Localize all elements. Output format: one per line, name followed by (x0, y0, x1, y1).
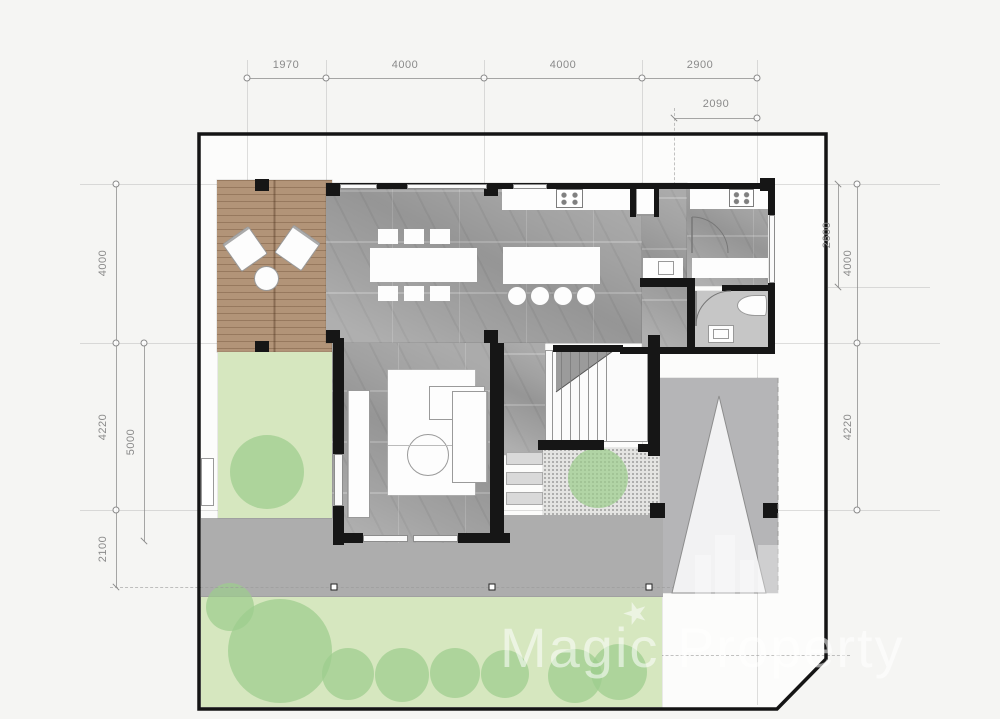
dimension-line (144, 343, 145, 541)
grid-dash-line (110, 587, 705, 588)
rug-line (388, 445, 452, 446)
dimension-line (674, 118, 757, 119)
wall (687, 291, 695, 351)
column (255, 341, 269, 352)
corridor-sink (658, 261, 674, 275)
bathroom-sink (708, 325, 734, 343)
wall (333, 533, 363, 543)
dining-table (370, 248, 477, 282)
dimension-node (854, 340, 861, 347)
column (326, 183, 340, 196)
wall (553, 345, 623, 352)
sliding-door (363, 535, 408, 542)
dimension-label: 2900 (687, 59, 713, 71)
dimension-node (754, 115, 761, 122)
side-gate (201, 458, 214, 506)
dimension-line (116, 184, 117, 587)
wall (333, 338, 344, 454)
dimension-label: 1970 (273, 59, 299, 71)
dimension-line (857, 184, 858, 510)
floor-plan: 1970 4000 4000 2900 2090 4000 4220 2100 … (0, 0, 1000, 719)
bar-stool (576, 286, 596, 306)
fence-post-marker (646, 584, 653, 591)
dimension-line (838, 184, 839, 287)
wall (638, 444, 660, 452)
sliding-door (413, 535, 458, 542)
wall (722, 285, 775, 291)
dimension-label: 4220 (842, 414, 854, 440)
dimension-node (244, 75, 251, 82)
thai-kitchen-counter (692, 258, 768, 278)
dimension-label: 4000 (842, 250, 854, 276)
courtyard-tree (568, 448, 628, 508)
tv-console (347, 390, 370, 518)
dimension-node (113, 340, 120, 347)
stair-tread (588, 351, 589, 441)
bar-stool (553, 286, 573, 306)
coffee-table (407, 434, 449, 476)
toilet (737, 295, 767, 316)
wall (768, 283, 775, 353)
column (484, 330, 498, 343)
tree (230, 435, 304, 509)
window (407, 184, 487, 189)
dimension-label: 4000 (550, 59, 576, 71)
stair-tread (597, 351, 598, 441)
pantry-sink-unit (636, 186, 656, 216)
column (763, 503, 778, 518)
dimension-label: 2100 (97, 536, 109, 562)
dimension-node (754, 75, 761, 82)
dimension-label: 5000 (125, 429, 137, 455)
dining-chair (378, 229, 398, 244)
column (326, 330, 340, 343)
wall (630, 183, 636, 217)
dining-chair (404, 229, 424, 244)
stove (556, 189, 583, 208)
dimension-node (141, 340, 148, 347)
wall (654, 183, 659, 217)
dimension-label: 4000 (392, 59, 418, 71)
bar-stool (530, 286, 550, 306)
dining-chair (378, 286, 398, 301)
dimension-node (323, 75, 330, 82)
skyline-watermark (740, 560, 754, 600)
dimension-label: 2600 (821, 222, 833, 248)
column (650, 503, 665, 518)
stair-tread (570, 351, 571, 441)
tree (430, 648, 480, 698)
dimension-node (113, 181, 120, 188)
fence-post-marker (489, 584, 496, 591)
window (513, 184, 547, 189)
tree (228, 599, 332, 703)
deck-table (254, 266, 279, 291)
window (340, 184, 377, 189)
window (769, 215, 775, 283)
tree (375, 648, 429, 702)
dimension-label: 2090 (703, 98, 729, 110)
wall (490, 343, 504, 543)
stair-tread (579, 351, 580, 441)
bar-stool (507, 286, 527, 306)
dining-chair (430, 286, 450, 301)
sofa (452, 391, 488, 483)
dimension-node (113, 507, 120, 514)
dimension-node (481, 75, 488, 82)
tree (322, 648, 374, 700)
stair-tread (552, 351, 553, 441)
fence-post-marker (331, 584, 338, 591)
skyline-watermark (758, 545, 780, 600)
kitchen-island (503, 247, 600, 284)
stair-tread (606, 351, 607, 441)
window (334, 454, 343, 506)
wall (648, 335, 660, 456)
thai-kitchen-stove (729, 189, 754, 207)
dimension-label: 4000 (97, 250, 109, 276)
skyline-watermark (715, 535, 735, 600)
wall (620, 347, 775, 354)
dining-chair (430, 229, 450, 244)
wall (326, 183, 775, 189)
watermark-text: Magic Property (500, 615, 905, 680)
dimension-label: 4220 (97, 414, 109, 440)
dimension-node (639, 75, 646, 82)
column (255, 179, 269, 191)
dimension-node (854, 181, 861, 188)
dining-chair (404, 286, 424, 301)
dimension-node (854, 507, 861, 514)
wall (538, 440, 604, 450)
column (760, 178, 775, 191)
stair-tread (561, 351, 562, 441)
skyline-watermark (695, 555, 711, 600)
